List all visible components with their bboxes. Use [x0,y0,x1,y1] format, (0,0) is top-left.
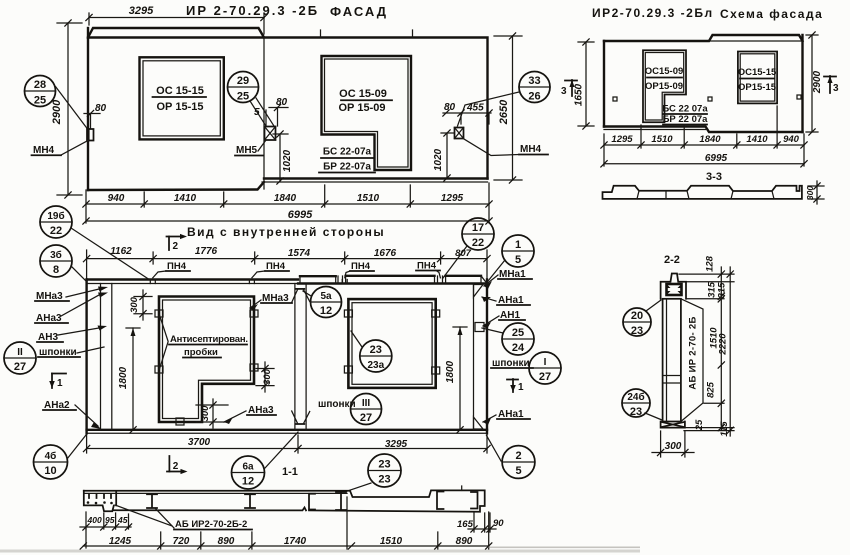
svg-text:3б: 3б [50,249,62,261]
svg-text:1574: 1574 [288,248,311,259]
svg-text:25: 25 [237,91,249,103]
svg-text:Вид с внутренней стороны: Вид с внутренней стороны [187,225,385,239]
svg-text:80: 80 [95,103,107,114]
svg-text:4б: 4б [45,450,57,462]
svg-text:6995: 6995 [705,153,728,164]
svg-text:1840: 1840 [699,134,721,145]
svg-text:26: 26 [528,91,540,103]
svg-text:23: 23 [378,459,390,471]
svg-text:33: 33 [528,75,540,87]
svg-text:Антисептирован.: Антисептирован. [170,334,248,345]
svg-text:ОР 15-09: ОР 15-09 [338,102,385,114]
svg-text:I: I [544,357,547,368]
svg-text:ОР15-15: ОР15-15 [738,82,777,93]
svg-text:1740: 1740 [284,536,307,547]
svg-text:БР 22-07а: БР 22-07а [323,162,371,173]
svg-text:940: 940 [108,193,125,204]
svg-text:95: 95 [105,515,115,525]
svg-text:19б: 19б [47,210,64,222]
svg-text:128: 128 [705,255,716,272]
svg-text:1650: 1650 [574,83,585,106]
svg-text:12: 12 [242,476,254,488]
svg-text:890: 890 [218,536,235,547]
svg-text:1: 1 [515,239,521,251]
svg-text:25: 25 [512,327,524,339]
svg-text:2220: 2220 [718,333,729,356]
svg-text:1410: 1410 [746,134,768,145]
svg-text:22: 22 [472,237,484,249]
svg-text:23: 23 [630,406,642,418]
svg-text:1800: 1800 [445,360,456,383]
svg-text:27: 27 [14,361,26,373]
svg-text:12: 12 [320,305,332,317]
svg-text:МН4: МН4 [520,144,542,155]
svg-text:24: 24 [512,342,525,354]
svg-text:5а: 5а [320,291,332,302]
svg-text:5: 5 [515,465,521,477]
svg-text:1510: 1510 [651,134,673,145]
svg-text:1676: 1676 [374,248,397,259]
svg-text:23а: 23а [367,360,384,371]
svg-text:24б: 24б [627,391,644,403]
svg-text:ОС15-15: ОС15-15 [738,67,777,78]
svg-text:ОС15-09: ОС15-09 [645,66,684,77]
svg-text:1: 1 [518,382,524,393]
svg-text:300: 300 [129,296,140,313]
svg-text:5: 5 [254,107,260,118]
svg-text:17: 17 [472,222,484,234]
svg-text:23: 23 [378,474,390,486]
svg-text:2-2: 2-2 [664,254,680,266]
svg-text:300: 300 [665,441,682,452]
svg-text:23: 23 [631,325,643,337]
svg-text:5: 5 [515,254,521,266]
svg-text:3700: 3700 [188,437,211,448]
svg-text:пробки: пробки [184,347,218,358]
svg-text:27: 27 [539,371,551,383]
svg-text:25: 25 [694,419,705,431]
svg-text:3295: 3295 [385,439,408,450]
svg-text:II: II [17,347,23,358]
svg-text:БС 22 07а: БС 22 07а [662,104,708,115]
svg-text:1776: 1776 [195,246,218,257]
svg-text:2: 2 [173,241,179,252]
svg-text:455: 455 [466,103,484,114]
svg-text:ОР15-09: ОР15-09 [645,81,683,92]
svg-text:890: 890 [456,536,473,547]
svg-text:1020: 1020 [282,149,293,172]
svg-text:1: 1 [57,378,63,389]
svg-text:2: 2 [515,450,521,462]
svg-text:300: 300 [200,405,211,422]
svg-text:165: 165 [457,519,474,530]
svg-text:1510: 1510 [357,193,380,204]
svg-text:45: 45 [117,515,128,525]
svg-text:10: 10 [44,465,56,477]
svg-text:ОС 15-15: ОС 15-15 [156,85,204,97]
svg-text:720: 720 [173,536,190,547]
svg-text:ФАСАД: ФАСАД [330,4,388,19]
svg-text:115: 115 [719,421,730,437]
svg-text:БР 22 07а: БР 22 07а [663,114,709,125]
svg-text:8: 8 [53,264,59,276]
svg-text:ИР 2-70.29.3 -2Б: ИР 2-70.29.3 -2Б [186,3,319,18]
svg-text:300: 300 [805,186,815,200]
svg-text:27: 27 [360,412,372,424]
svg-text:300: 300 [262,368,273,385]
svg-text:80: 80 [444,102,456,113]
svg-text:1295: 1295 [611,134,633,145]
svg-text:20: 20 [631,310,643,322]
svg-text:940: 940 [783,134,800,145]
svg-text:28: 28 [34,79,46,91]
svg-text:1800: 1800 [118,366,129,389]
svg-text:БС 22-07а: БС 22-07а [323,147,372,158]
svg-text:2900: 2900 [51,99,63,125]
svg-text:807: 807 [455,248,472,259]
svg-text:Схема фасада: Схема фасада [720,7,823,21]
svg-text:825: 825 [706,381,717,398]
svg-text:23: 23 [370,344,382,356]
svg-text:1410: 1410 [174,193,197,204]
svg-text:1295: 1295 [441,193,464,204]
svg-text:1510: 1510 [380,536,403,547]
svg-text:АБ ИР 2-70- 2Б: АБ ИР 2-70- 2Б [688,316,699,389]
svg-text:400: 400 [87,515,102,525]
svg-text:2900: 2900 [812,70,823,94]
svg-text:25: 25 [34,95,46,107]
svg-text:6995: 6995 [288,209,313,221]
svg-text:2: 2 [173,461,179,472]
svg-text:1245: 1245 [109,536,132,547]
svg-text:ОР 15-15: ОР 15-15 [156,101,203,113]
svg-text:ИР2-70.29.3 -2Бл: ИР2-70.29.3 -2Бл [592,6,714,20]
svg-text:22: 22 [50,225,62,237]
svg-text:3: 3 [561,86,567,97]
svg-text:29: 29 [237,75,249,87]
svg-text:АБ ИР2-70-2Б-2: АБ ИР2-70-2Б-2 [175,519,247,530]
svg-text:2650: 2650 [498,99,510,125]
svg-text:1020: 1020 [433,148,444,171]
svg-text:1-1: 1-1 [282,466,298,478]
svg-text:80: 80 [276,97,288,108]
svg-text:3-3: 3-3 [706,171,722,183]
svg-text:315: 315 [717,282,728,299]
svg-text:МН4: МН4 [33,145,55,156]
svg-text:1840: 1840 [274,193,297,204]
svg-text:90: 90 [493,518,504,529]
svg-text:III: III [362,398,371,409]
svg-text:6а: 6а [242,462,254,473]
svg-text:МН5: МН5 [236,145,258,156]
svg-text:3: 3 [833,83,839,94]
svg-text:ОС 15-09: ОС 15-09 [339,88,387,100]
svg-text:3295: 3295 [129,5,154,17]
